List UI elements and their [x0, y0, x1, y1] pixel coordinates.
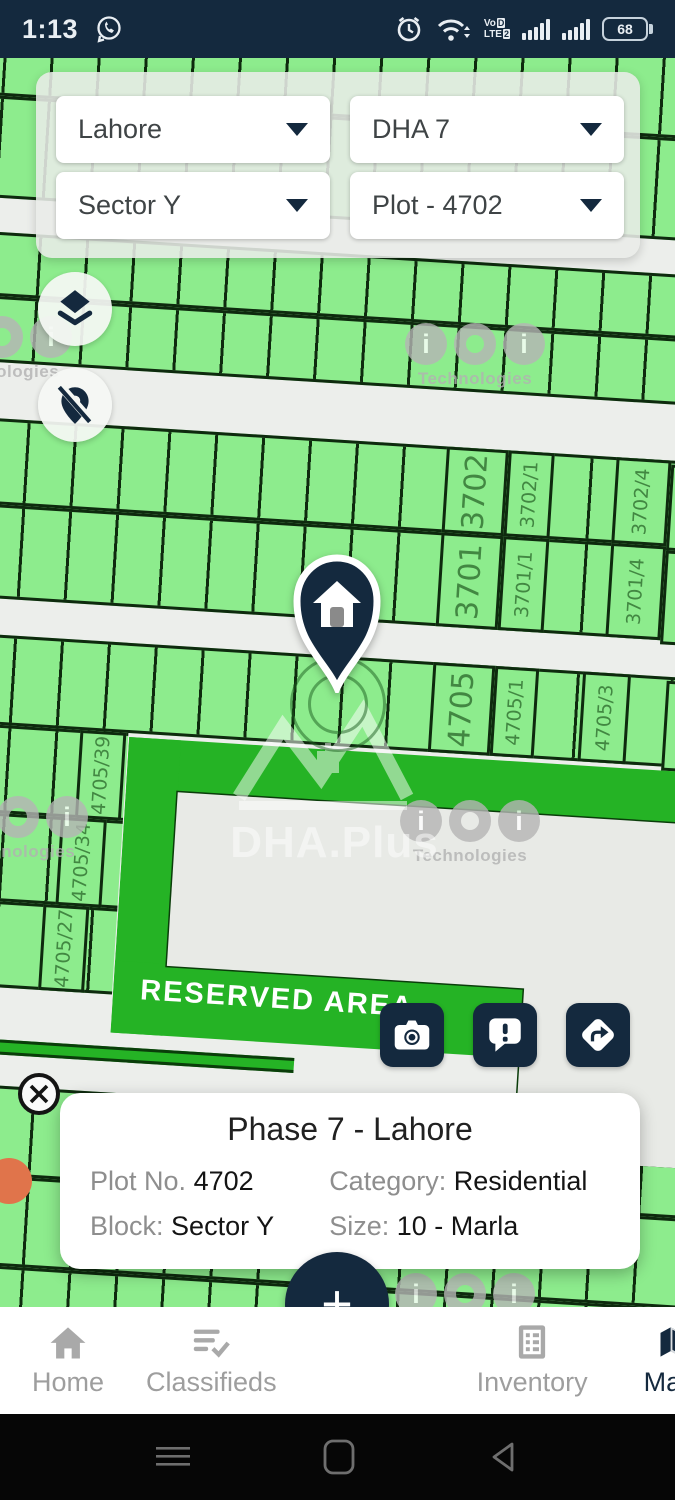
plot-select[interactable]: Plot - 4702 [350, 172, 624, 239]
volte-indicator: VoD LTE2 [484, 18, 510, 40]
directions-button[interactable] [566, 1003, 630, 1067]
block-label: Block: [90, 1211, 164, 1241]
category-label: Category: [329, 1166, 446, 1196]
map-layers-button[interactable] [38, 272, 112, 346]
city-select[interactable]: Lahore [56, 96, 330, 163]
location-off-icon [52, 382, 98, 428]
selected-plot-pin[interactable] [289, 551, 385, 693]
plot-no-value: 4702 [194, 1166, 254, 1196]
card-title: Phase 7 - Lahore [90, 1111, 610, 1148]
layers-icon [52, 286, 98, 332]
phone-screen: 3702 3702/1 3702/4 4880 3701 3701/1 3701… [0, 0, 675, 1500]
plot-3701[interactable]: 3701 [436, 532, 504, 630]
report-chat-icon [484, 1014, 526, 1056]
nav-maps[interactable]: Maps [644, 1307, 675, 1398]
watermark-ioi: ii Technologies [0, 796, 98, 862]
nav-home[interactable]: Home [32, 1307, 104, 1398]
filter-panel: Lahore DHA 7 Sector Y Plot - 4702 [36, 72, 640, 258]
plot-no-label: Plot No. [90, 1166, 186, 1196]
plot-3701-4[interactable]: 3701/4 [605, 543, 666, 640]
camera-icon [390, 1015, 434, 1055]
my-location-off-button[interactable] [38, 368, 112, 442]
plot-4705-1[interactable]: 4705/1 [490, 666, 540, 759]
close-card-button[interactable] [18, 1073, 60, 1115]
watermark-ioi: ii Technologies [385, 1273, 545, 1307]
home-button[interactable] [322, 1438, 356, 1476]
close-icon [27, 1082, 51, 1106]
watermark-ioi: ii Technologies [395, 323, 555, 389]
city-select-value: Lahore [78, 114, 162, 145]
wifi-icon [436, 14, 472, 44]
block-value: Sector Y [171, 1211, 274, 1241]
directions-icon [576, 1013, 620, 1057]
nav-inventory[interactable]: Inventory [477, 1307, 588, 1398]
menu-button[interactable] [154, 1442, 192, 1472]
category-value: Residential [454, 1166, 588, 1196]
camera-button[interactable] [380, 1003, 444, 1067]
inventory-icon [511, 1321, 553, 1363]
chevron-down-icon [580, 199, 602, 212]
home-icon [46, 1321, 90, 1363]
nav-classifieds[interactable]: Classifieds [146, 1307, 277, 1398]
signal-bars-1 [522, 18, 550, 40]
plot-select-value: Plot - 4702 [372, 190, 503, 221]
plot-4705-3[interactable]: 4705/3 [577, 671, 631, 764]
alarm-icon [394, 14, 424, 44]
maps-icon [655, 1321, 675, 1363]
status-bar: 1:13 VoD LTE2 [0, 0, 675, 58]
chevron-down-icon [580, 123, 602, 136]
back-button[interactable] [486, 1440, 522, 1474]
sector-select[interactable]: Sector Y [56, 172, 330, 239]
whatsapp-icon [94, 14, 124, 44]
chevron-down-icon [286, 199, 308, 212]
plot-3702[interactable]: 3702 [442, 446, 509, 536]
size-value: 10 - Marla [397, 1211, 519, 1241]
plot-3701-1[interactable]: 3701/1 [498, 536, 550, 633]
classifieds-icon [188, 1321, 234, 1363]
clock: 1:13 [22, 14, 78, 45]
phase-select[interactable]: DHA 7 [350, 96, 624, 163]
plot-3702-1[interactable]: 3702/1 [503, 450, 554, 539]
plot-4705-27[interactable]: 4705/27 [38, 904, 89, 993]
size-label: Size: [329, 1211, 389, 1241]
phase-select-value: DHA 7 [372, 114, 450, 145]
bottom-navigation: Home Classifieds Inventory [0, 1307, 675, 1414]
plot-3702-4[interactable]: 3702/4 [611, 457, 671, 546]
chevron-down-icon [286, 123, 308, 136]
signal-bars-2 [562, 18, 590, 40]
sector-select-value: Sector Y [78, 190, 181, 221]
battery-indicator: 68 [602, 17, 653, 41]
plot-info-card: Phase 7 - Lahore Plot No. 4702 Category:… [60, 1093, 640, 1269]
report-button[interactable] [473, 1003, 537, 1067]
android-navigation-bar [0, 1414, 675, 1500]
